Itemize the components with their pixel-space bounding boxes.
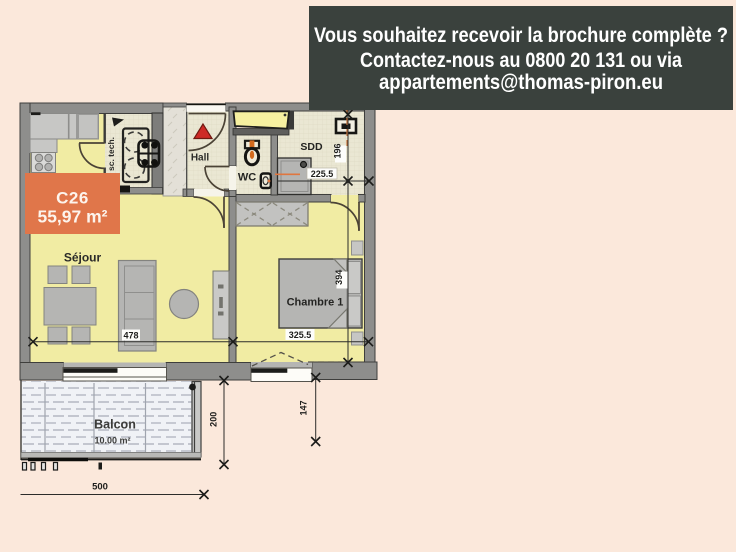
svg-text:225.5: 225.5 xyxy=(311,169,334,179)
svg-text:196: 196 xyxy=(333,143,343,158)
svg-text:Hall: Hall xyxy=(191,153,210,164)
svg-text:325.5: 325.5 xyxy=(289,330,312,340)
svg-text:147: 147 xyxy=(299,400,309,415)
svg-text:10.00 m²: 10.00 m² xyxy=(94,436,130,446)
svg-text:478: 478 xyxy=(123,331,138,341)
svg-text:200: 200 xyxy=(209,412,219,427)
svg-text:Chambre 1: Chambre 1 xyxy=(287,297,344,309)
svg-text:WC: WC xyxy=(238,172,256,184)
svg-text:394: 394 xyxy=(334,270,344,285)
svg-text:Séjour: Séjour xyxy=(64,251,102,265)
svg-text:55,97 m²: 55,97 m² xyxy=(37,207,107,227)
svg-text:500: 500 xyxy=(92,482,108,493)
svg-text:sc. tech.: sc. tech. xyxy=(106,137,116,171)
svg-text:SDD: SDD xyxy=(300,141,323,153)
svg-text:C26: C26 xyxy=(56,189,89,208)
svg-text:Balcon: Balcon xyxy=(94,418,136,432)
